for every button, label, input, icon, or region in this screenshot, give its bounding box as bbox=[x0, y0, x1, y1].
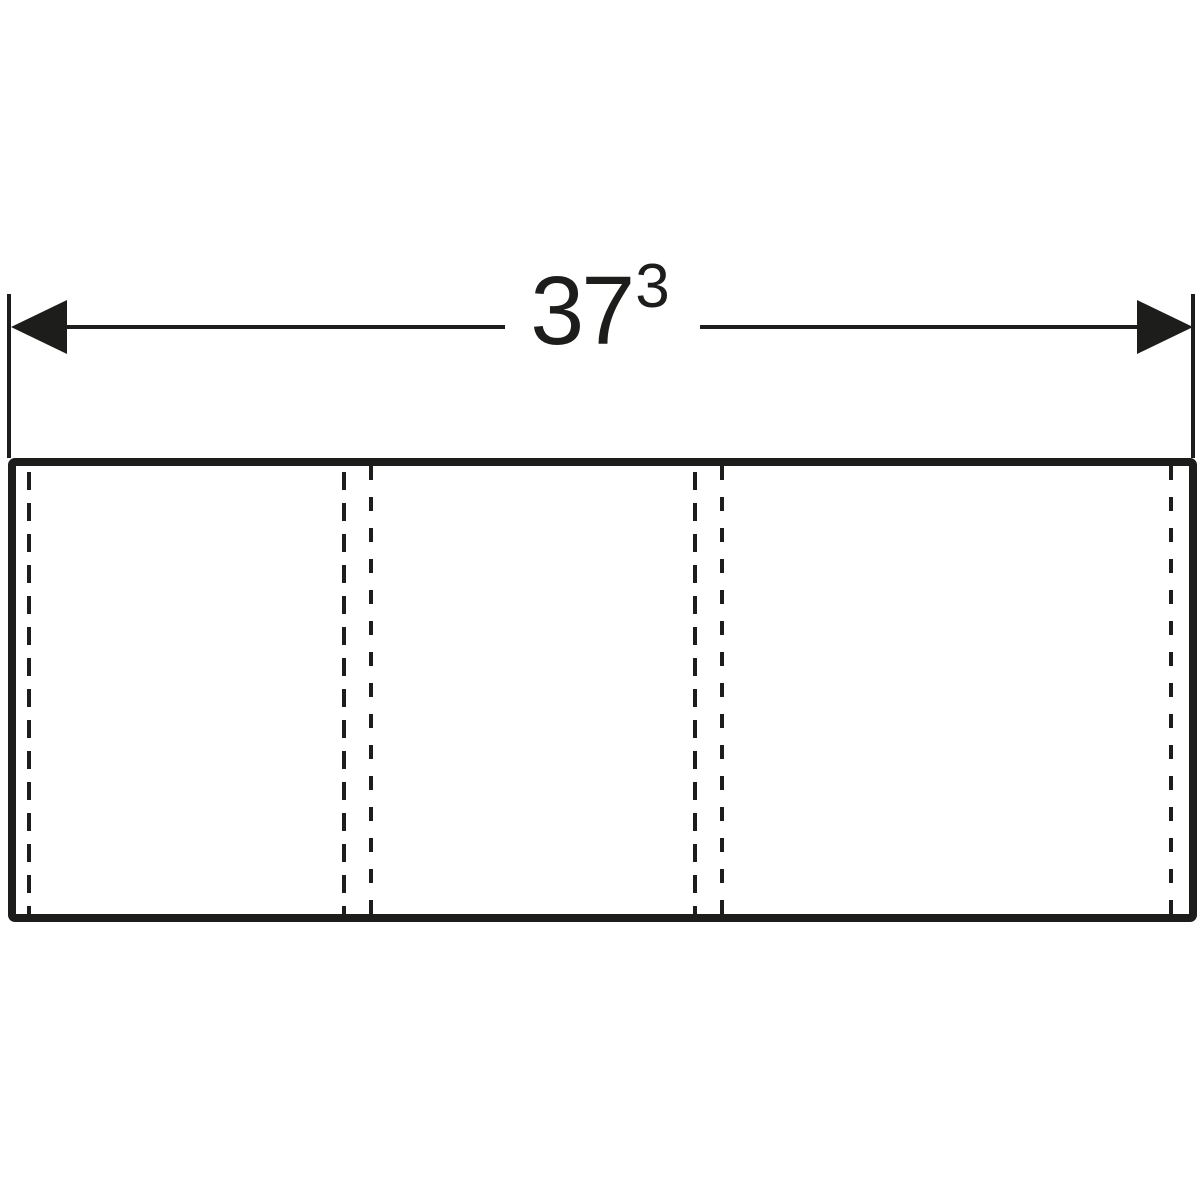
divider-1-right-edge bbox=[369, 466, 373, 914]
hidden-edge-left bbox=[27, 472, 31, 914]
dimension-value: 37 bbox=[530, 262, 632, 359]
hidden-edge-right bbox=[1169, 466, 1173, 914]
divider-1-left-edge bbox=[342, 472, 346, 914]
dimension-drawing: 37 3 bbox=[0, 0, 1200, 1200]
dimension-superscript: 3 bbox=[635, 256, 669, 318]
panel-outline bbox=[8, 458, 1197, 922]
divider-2-right-edge bbox=[720, 466, 724, 914]
divider-2-left-edge bbox=[693, 472, 697, 914]
dimension-label: 37 3 bbox=[0, 262, 1200, 359]
